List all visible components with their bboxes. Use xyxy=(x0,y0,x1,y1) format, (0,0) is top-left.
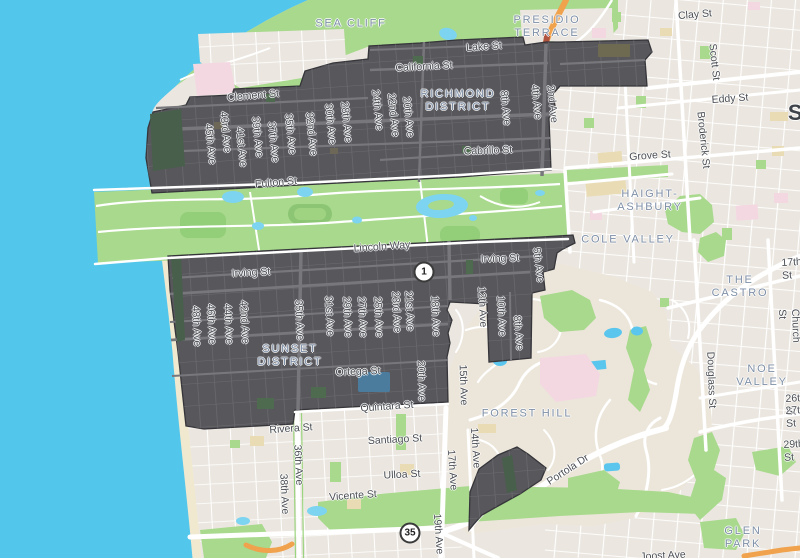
map[interactable]: Lake StCalifornia StClement StCabrillo S… xyxy=(0,0,800,558)
map-canvas xyxy=(0,0,800,558)
